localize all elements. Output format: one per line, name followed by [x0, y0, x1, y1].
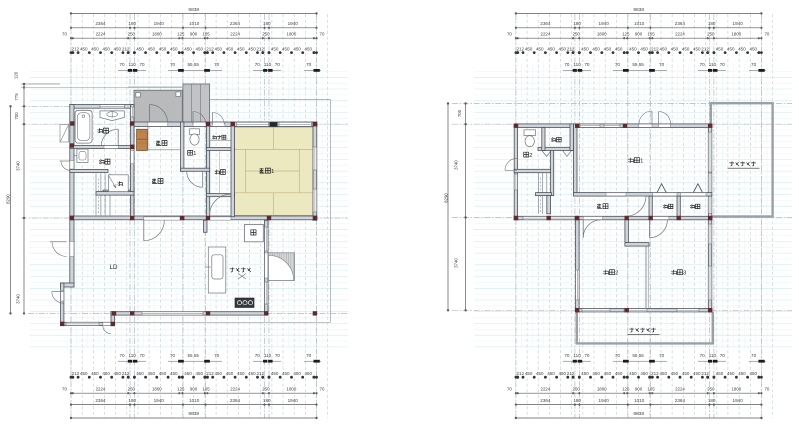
- svg-text:450: 450: [640, 47, 648, 52]
- svg-text:2: 2: [529, 153, 532, 159]
- svg-text:1800: 1800: [731, 32, 741, 37]
- svg-text:250: 250: [262, 387, 270, 392]
- svg-text:450: 450: [682, 371, 690, 376]
- svg-text:120: 120: [14, 71, 19, 79]
- svg-text:250: 250: [573, 32, 581, 37]
- svg-text:110: 110: [264, 353, 272, 358]
- svg-text:900: 900: [190, 32, 198, 37]
- svg-text:450: 450: [215, 371, 223, 376]
- svg-text:450: 450: [147, 371, 155, 376]
- svg-text:110: 110: [573, 353, 581, 358]
- svg-text:9838: 9838: [188, 411, 199, 417]
- svg-text:212: 212: [517, 47, 525, 52]
- svg-text:105: 105: [202, 32, 210, 37]
- svg-text:775: 775: [14, 93, 19, 101]
- svg-text:70: 70: [255, 353, 261, 358]
- svg-text:105: 105: [202, 387, 210, 392]
- svg-text:70: 70: [320, 32, 325, 37]
- svg-text:450: 450: [581, 371, 589, 376]
- svg-text:180: 180: [708, 21, 716, 26]
- svg-text:900: 900: [190, 387, 198, 392]
- svg-text:212: 212: [256, 47, 264, 52]
- svg-text:450: 450: [136, 47, 144, 52]
- svg-text:450: 450: [305, 371, 313, 376]
- svg-text:180: 180: [573, 398, 581, 403]
- svg-text:1940: 1940: [154, 398, 165, 403]
- svg-text:450: 450: [114, 371, 122, 376]
- svg-text:450: 450: [80, 371, 88, 376]
- svg-text:125: 125: [177, 387, 185, 392]
- svg-text:450: 450: [671, 371, 679, 376]
- svg-text:1940: 1940: [599, 398, 610, 403]
- svg-text:70: 70: [214, 353, 220, 358]
- svg-text:70: 70: [320, 387, 325, 392]
- svg-text:2224: 2224: [541, 387, 551, 392]
- svg-text:212: 212: [701, 47, 709, 52]
- svg-text:450: 450: [659, 371, 667, 376]
- svg-text:2364: 2364: [95, 398, 106, 403]
- svg-text:70: 70: [700, 353, 706, 358]
- svg-text:450: 450: [226, 371, 234, 376]
- svg-text:212: 212: [567, 371, 575, 376]
- svg-text:1940: 1940: [599, 21, 610, 26]
- svg-text:55: 55: [639, 353, 645, 358]
- svg-text:212: 212: [122, 371, 130, 376]
- svg-text:1800: 1800: [287, 32, 297, 37]
- svg-text:450: 450: [248, 371, 256, 376]
- svg-text:450: 450: [604, 47, 612, 52]
- svg-text:450: 450: [615, 371, 623, 376]
- svg-text:450: 450: [170, 47, 178, 52]
- svg-text:55: 55: [639, 62, 645, 67]
- svg-text:70: 70: [62, 32, 67, 37]
- svg-text:450: 450: [91, 371, 99, 376]
- svg-text:70: 70: [139, 62, 145, 67]
- svg-text:2224: 2224: [541, 32, 551, 37]
- svg-text:180: 180: [708, 398, 716, 403]
- svg-text:1940: 1940: [154, 21, 165, 26]
- svg-text:1800: 1800: [597, 387, 607, 392]
- svg-text:180: 180: [573, 21, 581, 26]
- svg-text:70: 70: [170, 62, 176, 67]
- svg-text:70: 70: [700, 62, 706, 67]
- svg-text:55: 55: [632, 62, 638, 67]
- svg-text:2364: 2364: [230, 398, 241, 403]
- svg-text:125: 125: [177, 32, 185, 37]
- svg-text:110: 110: [129, 353, 137, 358]
- svg-text:55: 55: [187, 62, 193, 67]
- svg-text:2224: 2224: [96, 387, 106, 392]
- svg-text:450: 450: [640, 371, 648, 376]
- svg-text:212: 212: [206, 47, 214, 52]
- svg-text:70: 70: [139, 353, 145, 358]
- svg-text:450: 450: [184, 371, 192, 376]
- svg-text:450: 450: [716, 47, 724, 52]
- svg-text:900: 900: [635, 387, 643, 392]
- svg-text:2364: 2364: [675, 21, 686, 26]
- svg-text:1: 1: [640, 158, 643, 164]
- svg-text:105: 105: [647, 32, 655, 37]
- svg-text:2224: 2224: [230, 387, 240, 392]
- svg-text:1800: 1800: [152, 32, 162, 37]
- svg-text:450: 450: [558, 371, 566, 376]
- svg-text:450: 450: [305, 47, 313, 52]
- svg-text:1800: 1800: [287, 387, 297, 392]
- svg-text:1800: 1800: [731, 387, 741, 392]
- svg-text:70: 70: [764, 387, 769, 392]
- svg-text:70: 70: [255, 62, 261, 67]
- svg-text:1940: 1940: [733, 21, 744, 26]
- svg-text:450: 450: [592, 47, 600, 52]
- svg-text:250: 250: [707, 387, 715, 392]
- svg-text:1940: 1940: [288, 21, 299, 26]
- svg-text:70: 70: [584, 353, 590, 358]
- svg-text:2224: 2224: [96, 32, 106, 37]
- svg-text:450: 450: [282, 371, 290, 376]
- svg-text:450: 450: [547, 47, 555, 52]
- svg-text:70: 70: [119, 353, 125, 358]
- svg-text:1940: 1940: [733, 398, 744, 403]
- svg-text:450: 450: [237, 47, 245, 52]
- svg-text:700: 700: [457, 109, 462, 117]
- svg-text:3740: 3740: [454, 160, 459, 170]
- svg-text:55: 55: [194, 353, 200, 358]
- svg-text:70: 70: [507, 32, 512, 37]
- svg-text:450: 450: [293, 371, 301, 376]
- svg-text:450: 450: [293, 47, 301, 52]
- svg-text:212: 212: [701, 371, 709, 376]
- svg-text:450: 450: [659, 47, 667, 52]
- svg-text:55: 55: [187, 353, 193, 358]
- svg-text:250: 250: [128, 387, 136, 392]
- svg-text:250: 250: [128, 32, 136, 37]
- svg-text:450: 450: [271, 47, 279, 52]
- svg-text:1010: 1010: [634, 398, 645, 403]
- svg-text:450: 450: [536, 371, 544, 376]
- svg-text:9838: 9838: [188, 7, 199, 13]
- svg-text:450: 450: [226, 47, 234, 52]
- svg-text:212: 212: [206, 371, 214, 376]
- svg-text:70: 70: [615, 62, 621, 67]
- svg-text:450: 450: [671, 47, 679, 52]
- svg-text:450: 450: [738, 371, 746, 376]
- svg-text:70: 70: [306, 62, 312, 67]
- svg-text:450: 450: [581, 47, 589, 52]
- svg-text:70: 70: [720, 353, 726, 358]
- svg-text:70: 70: [170, 353, 176, 358]
- svg-text:212: 212: [651, 47, 659, 52]
- svg-text:212: 212: [256, 371, 264, 376]
- svg-text:450: 450: [80, 47, 88, 52]
- svg-text:70: 70: [584, 62, 590, 67]
- svg-text:3740: 3740: [16, 294, 21, 304]
- svg-text:450: 450: [592, 371, 600, 376]
- svg-text:70: 70: [659, 353, 665, 358]
- svg-text:450: 450: [215, 47, 223, 52]
- svg-text:450: 450: [136, 371, 144, 376]
- svg-text:450: 450: [738, 47, 746, 52]
- svg-text:450: 450: [615, 47, 623, 52]
- svg-text:3740: 3740: [454, 258, 459, 268]
- svg-text:70: 70: [275, 353, 281, 358]
- svg-text:450: 450: [727, 47, 735, 52]
- svg-text:70: 70: [62, 387, 67, 392]
- svg-text:LD: LD: [110, 264, 118, 271]
- svg-text:1010: 1010: [189, 21, 200, 26]
- svg-text:180: 180: [263, 21, 271, 26]
- svg-text:1940: 1940: [288, 398, 299, 403]
- svg-text:70: 70: [507, 387, 512, 392]
- svg-text:450: 450: [195, 371, 203, 376]
- svg-text:70: 70: [751, 62, 757, 67]
- svg-text:2364: 2364: [675, 398, 686, 403]
- svg-text:2224: 2224: [675, 32, 685, 37]
- svg-text:2364: 2364: [95, 21, 106, 26]
- svg-text:70: 70: [764, 32, 769, 37]
- svg-text:1: 1: [193, 151, 196, 157]
- svg-text:450: 450: [102, 47, 110, 52]
- svg-text:1010: 1010: [189, 398, 200, 403]
- svg-text:1: 1: [271, 169, 274, 175]
- svg-text:1800: 1800: [152, 387, 162, 392]
- svg-text:450: 450: [525, 47, 533, 52]
- svg-text:212: 212: [567, 47, 575, 52]
- svg-text:2224: 2224: [230, 32, 240, 37]
- svg-text:450: 450: [159, 371, 167, 376]
- svg-text:70: 70: [720, 62, 726, 67]
- svg-text:450: 450: [629, 47, 637, 52]
- svg-text:250: 250: [262, 32, 270, 37]
- svg-text:450: 450: [536, 47, 544, 52]
- svg-text:450: 450: [558, 47, 566, 52]
- svg-text:70: 70: [751, 353, 757, 358]
- svg-text:125: 125: [622, 32, 630, 37]
- svg-text:70: 70: [275, 62, 281, 67]
- svg-text:125: 125: [622, 387, 630, 392]
- svg-text:70: 70: [564, 62, 570, 67]
- svg-text:70: 70: [306, 353, 312, 358]
- svg-text:1800: 1800: [597, 32, 607, 37]
- svg-text:110: 110: [573, 62, 581, 67]
- svg-text:450: 450: [271, 371, 279, 376]
- svg-text:1010: 1010: [634, 21, 645, 26]
- svg-text:2364: 2364: [230, 21, 241, 26]
- svg-text:450: 450: [727, 371, 735, 376]
- svg-text:110: 110: [709, 353, 717, 358]
- svg-text:450: 450: [693, 47, 701, 52]
- svg-text:450: 450: [248, 47, 256, 52]
- svg-text:212: 212: [72, 47, 80, 52]
- svg-text:110: 110: [129, 62, 137, 67]
- svg-text:212: 212: [122, 47, 130, 52]
- svg-text:450: 450: [525, 371, 533, 376]
- svg-text:250: 250: [573, 387, 581, 392]
- svg-text:212: 212: [651, 371, 659, 376]
- svg-text:450: 450: [749, 47, 757, 52]
- svg-text:450: 450: [682, 47, 690, 52]
- svg-text:450: 450: [547, 371, 555, 376]
- svg-text:105: 105: [647, 387, 655, 392]
- svg-text:450: 450: [237, 371, 245, 376]
- svg-text:70: 70: [119, 62, 125, 67]
- svg-text:70: 70: [214, 62, 220, 67]
- svg-text:8290: 8290: [6, 194, 11, 204]
- svg-text:450: 450: [716, 371, 724, 376]
- svg-text:700: 700: [14, 112, 19, 120]
- svg-text:450: 450: [170, 371, 178, 376]
- svg-text:450: 450: [91, 47, 99, 52]
- svg-text:2224: 2224: [675, 387, 685, 392]
- svg-text:250: 250: [707, 32, 715, 37]
- svg-text:450: 450: [184, 47, 192, 52]
- svg-text:110: 110: [264, 62, 272, 67]
- svg-text:70: 70: [564, 353, 570, 358]
- svg-text:180: 180: [128, 398, 136, 403]
- svg-text:2364: 2364: [540, 398, 551, 403]
- svg-text:900: 900: [635, 32, 643, 37]
- svg-text:70: 70: [615, 353, 621, 358]
- svg-text:55: 55: [632, 353, 638, 358]
- svg-text:450: 450: [195, 47, 203, 52]
- svg-text:180: 180: [128, 21, 136, 26]
- svg-text:450: 450: [629, 371, 637, 376]
- svg-text:8290: 8290: [444, 193, 449, 203]
- svg-text:450: 450: [114, 47, 122, 52]
- svg-text:212: 212: [72, 371, 80, 376]
- svg-text:450: 450: [147, 47, 155, 52]
- svg-text:70: 70: [659, 62, 665, 67]
- svg-text:450: 450: [102, 371, 110, 376]
- svg-text:2: 2: [615, 270, 618, 276]
- svg-text:180: 180: [263, 398, 271, 403]
- svg-text:3740: 3740: [16, 161, 21, 171]
- svg-text:450: 450: [749, 371, 757, 376]
- svg-text:450: 450: [693, 371, 701, 376]
- svg-text:450: 450: [604, 371, 612, 376]
- svg-text:55: 55: [194, 62, 200, 67]
- svg-text:2364: 2364: [540, 21, 551, 26]
- svg-text:212: 212: [517, 371, 525, 376]
- svg-text:450: 450: [282, 47, 290, 52]
- svg-text:9838: 9838: [633, 411, 644, 417]
- svg-text:110: 110: [709, 62, 717, 67]
- svg-text:450: 450: [159, 47, 167, 52]
- svg-text:3: 3: [683, 270, 686, 276]
- svg-text:9838: 9838: [633, 7, 644, 13]
